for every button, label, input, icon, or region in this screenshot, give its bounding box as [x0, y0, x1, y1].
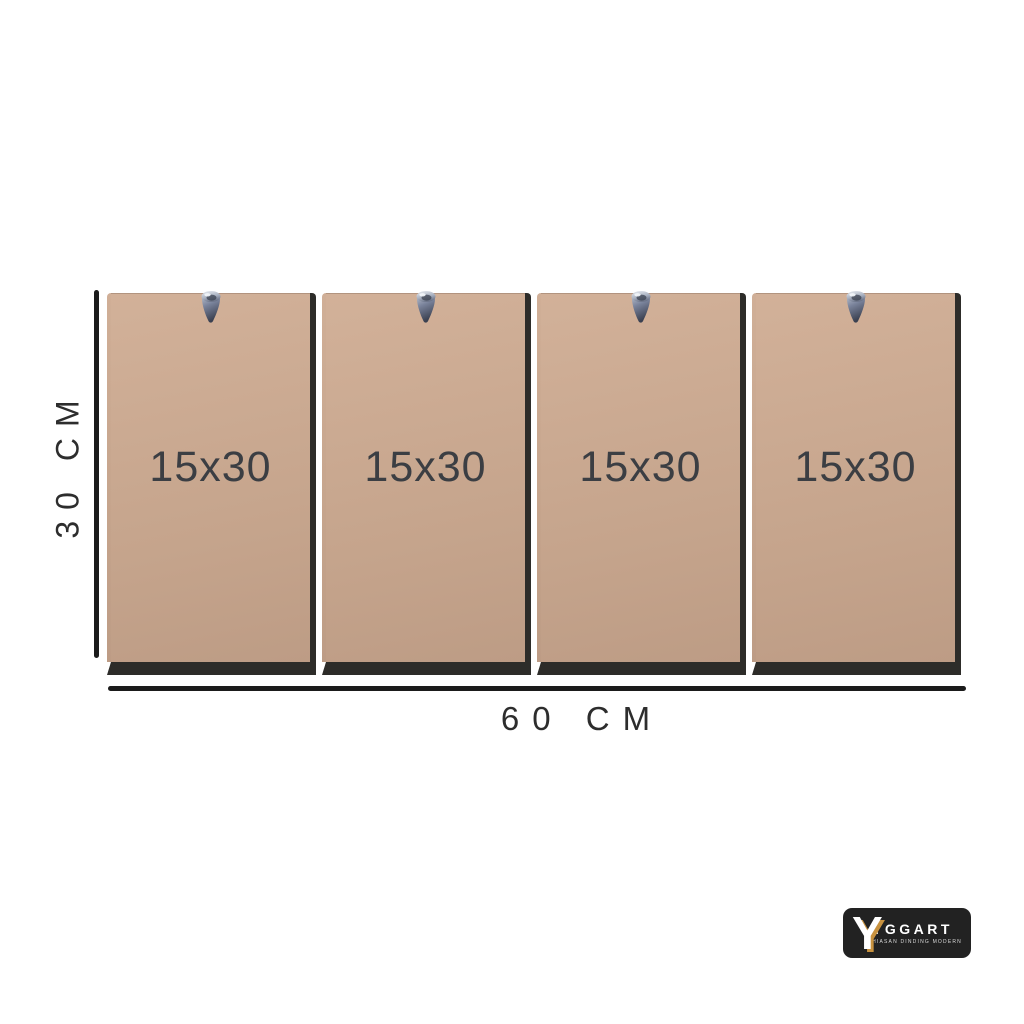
- panel-2: 15x30: [322, 293, 531, 675]
- panel-size-label: 15x30: [326, 443, 525, 492]
- width-dimension-label: 60 CM: [501, 700, 663, 738]
- panel-3: 15x30: [537, 293, 746, 675]
- wall-hook-icon: [196, 289, 226, 325]
- brand-monogram-y-icon: Y Y: [852, 911, 864, 955]
- wall-hook-icon: [841, 289, 871, 325]
- wall-hook-icon: [626, 289, 656, 325]
- panel-1: 15x30: [107, 293, 316, 675]
- width-dimension-line: [108, 686, 966, 691]
- monogram-white-layer: Y: [852, 911, 883, 955]
- panel-4: 15x30: [752, 293, 961, 675]
- brand-logo: Y Y YGGART HIASAN DINDING MODERN: [843, 908, 971, 958]
- panel-size-label: 15x30: [541, 443, 740, 492]
- height-dimension-label: 30 CM: [50, 389, 87, 538]
- height-dimension-line: [94, 290, 99, 658]
- panel-row: 15x30 15x30 15x30: [107, 293, 961, 675]
- panel-size-label: 15x30: [756, 443, 955, 492]
- panel-size-label: 15x30: [111, 443, 310, 492]
- wall-hook-icon: [411, 289, 441, 325]
